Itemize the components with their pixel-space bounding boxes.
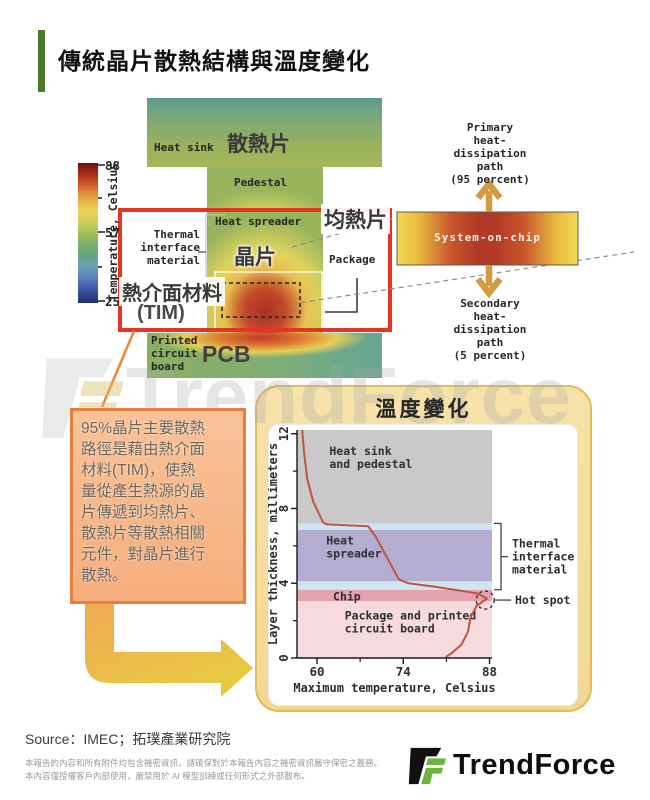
- callout-flow-arrow: [85, 598, 253, 697]
- secondary-path-label: Secondary heat- dissipation path (5 perc…: [425, 297, 555, 362]
- disclaimer-line-2: 本內容僅授權客戶內部使用，嚴禁用於 AI 模型訓練或任何形式之外部散布。: [25, 770, 310, 782]
- chart-card-title: 溫度變化: [255, 393, 592, 423]
- tim-label-en: Thermal interface material: [124, 228, 200, 267]
- svg-text:88: 88: [482, 664, 497, 679]
- source-line: Source：IMEC；拓璞產業研究院: [25, 729, 230, 749]
- heat-spreader-label-zh: 均熱片: [321, 204, 390, 234]
- page: 傳統晶片散熱結構與溫度變化: [0, 0, 650, 800]
- colorbar-tick-88: 88: [105, 158, 120, 173]
- disclaimer-line-1: 本報告的內容和所有附件均包含機密資訊，請確保對於本報告內容之機密資訊嚴守保密之義…: [25, 757, 382, 769]
- layer-temperature-chart: Heat sinkand pedestalHeatspreaderChipPac…: [268, 424, 578, 706]
- pcb-label-zh: PCB: [202, 341, 251, 368]
- svg-text:Thermalinterfacematerial: Thermalinterfacematerial: [512, 537, 574, 577]
- svg-text:74: 74: [396, 664, 411, 679]
- svg-text:Hot spot: Hot spot: [515, 593, 570, 607]
- svg-text:60: 60: [309, 664, 324, 679]
- trendforce-logo-icon: [405, 744, 447, 786]
- trendforce-logo: TrendForce: [405, 744, 616, 786]
- secondary-path-arrow: [478, 265, 500, 293]
- primary-path-arrow: [478, 184, 500, 212]
- package-label: Package: [329, 253, 375, 266]
- svg-text:Layer thickness, millimeters: Layer thickness, millimeters: [268, 443, 280, 645]
- package-bracket: [325, 278, 357, 312]
- svg-text:Maximum temperature, Celsius: Maximum temperature, Celsius: [293, 681, 495, 695]
- soc-label: System-on-chip: [397, 231, 578, 244]
- svg-text:12: 12: [276, 426, 291, 441]
- callout-connector-line: [102, 331, 134, 407]
- svg-text:Chip: Chip: [333, 590, 361, 604]
- temperature-colorbar: [78, 163, 105, 303]
- callout-text: 95%晶片主要散熱 路徑是藉由熱介面 材料(TIM)，使熱 量從產生熱源的晶 片…: [81, 418, 235, 586]
- callout-box: 95%晶片主要散熱 路徑是藉由熱介面 材料(TIM)，使熱 量從產生熱源的晶 片…: [70, 408, 246, 604]
- tim-label-suffix: (TIM): [137, 302, 185, 325]
- heat-spreader-label-en: Heat spreader: [215, 215, 301, 228]
- trendforce-logo-text: TrendForce: [453, 749, 616, 782]
- svg-text:0: 0: [276, 654, 291, 662]
- heat-sink-label-en: Heat sink: [154, 141, 214, 154]
- pcb-label-en: Printed circuit board: [151, 334, 197, 373]
- colorbar-tick-25: 25: [105, 294, 120, 309]
- colorbar-tick-57: 57: [105, 225, 120, 240]
- pedestal-block: [207, 167, 323, 212]
- pedestal-label: Pedestal: [234, 176, 287, 189]
- primary-path-label: Primary heat- dissipation path (95 perce…: [425, 121, 555, 186]
- chip-label-zh: 晶片: [234, 241, 276, 271]
- heat-sink-label-zh: 散熱片: [227, 128, 290, 158]
